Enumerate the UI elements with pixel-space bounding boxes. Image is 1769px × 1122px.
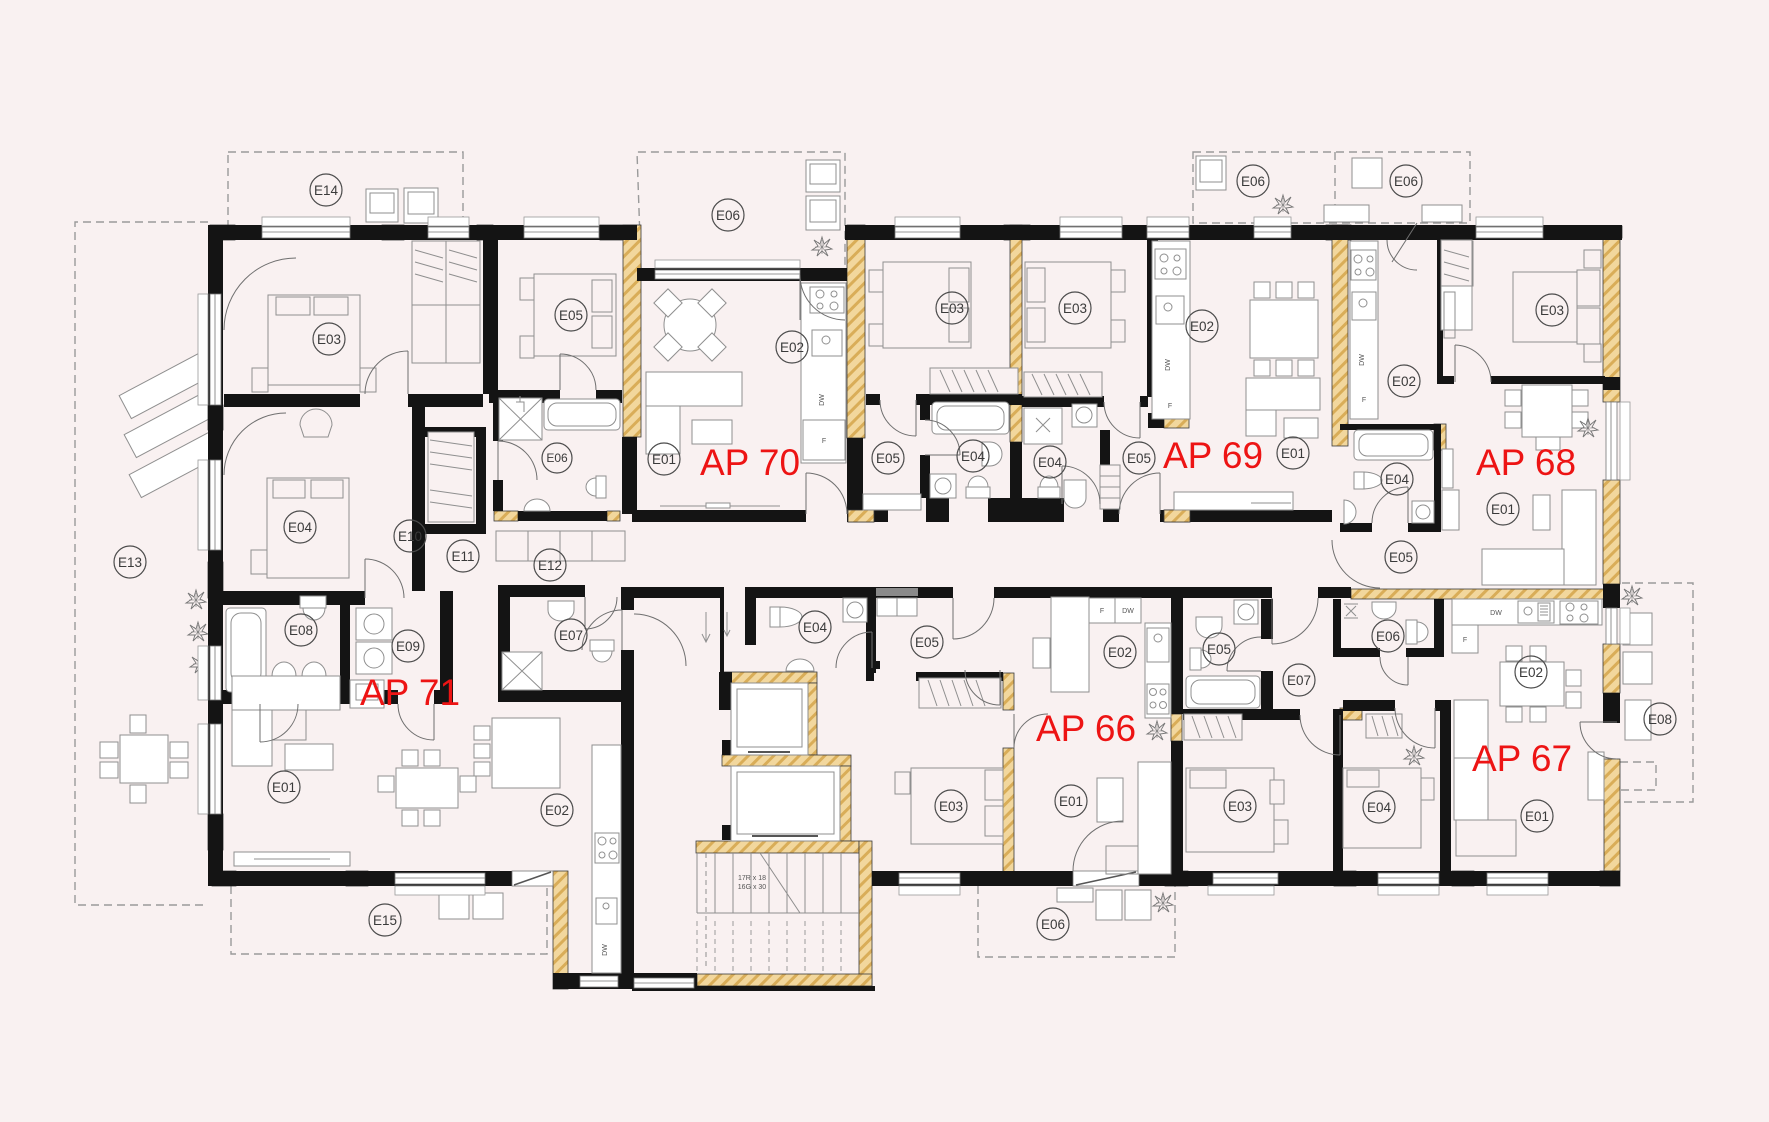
svg-text:E05: E05: [915, 635, 939, 650]
svg-text:AP 70: AP 70: [700, 442, 800, 483]
svg-text:E06: E06: [1394, 174, 1418, 189]
svg-text:DW: DW: [602, 944, 609, 956]
svg-text:E11: E11: [451, 549, 474, 564]
svg-text:E02: E02: [1392, 374, 1416, 389]
svg-text:16G x 30: 16G x 30: [738, 884, 767, 891]
svg-text:E05: E05: [1207, 642, 1231, 657]
svg-text:DW: DW: [819, 394, 826, 406]
svg-text:E15: E15: [373, 913, 397, 928]
svg-text:E07: E07: [1287, 673, 1311, 688]
svg-text:E05: E05: [1127, 451, 1151, 466]
svg-text:F: F: [1463, 637, 1467, 644]
svg-text:E04: E04: [1367, 800, 1392, 815]
svg-text:E01: E01: [1059, 794, 1083, 809]
svg-text:E02: E02: [1190, 319, 1214, 334]
svg-text:E02: E02: [1519, 665, 1543, 680]
svg-text:E02: E02: [780, 340, 804, 355]
svg-text:DW: DW: [1359, 354, 1366, 366]
svg-text:E06: E06: [1041, 917, 1065, 932]
svg-text:E01: E01: [652, 452, 676, 467]
svg-text:E04: E04: [961, 449, 986, 464]
svg-text:E01: E01: [272, 780, 296, 795]
svg-text:E02: E02: [1108, 645, 1132, 660]
svg-text:E08: E08: [289, 623, 313, 638]
svg-text:DW: DW: [1165, 359, 1172, 371]
svg-text:DW: DW: [1122, 608, 1134, 615]
svg-text:E05: E05: [1389, 550, 1413, 565]
svg-text:F: F: [822, 438, 826, 445]
svg-text:E06: E06: [1376, 629, 1400, 644]
svg-text:E06: E06: [546, 451, 568, 465]
svg-text:E10: E10: [398, 529, 422, 544]
svg-text:E04: E04: [1038, 455, 1063, 470]
svg-text:AP 71: AP 71: [360, 672, 460, 713]
svg-text:E08: E08: [1648, 712, 1672, 727]
svg-text:E07: E07: [559, 628, 583, 643]
svg-text:E03: E03: [1063, 301, 1087, 316]
svg-text:E04: E04: [288, 520, 313, 535]
svg-text:E01: E01: [1281, 446, 1305, 461]
svg-text:E12: E12: [538, 558, 562, 573]
svg-text:E04: E04: [803, 620, 828, 635]
svg-text:E09: E09: [396, 639, 420, 654]
svg-text:E05: E05: [559, 308, 583, 323]
svg-text:E13: E13: [118, 555, 142, 570]
svg-text:E01: E01: [1491, 502, 1515, 517]
svg-text:E05: E05: [876, 451, 900, 466]
svg-text:AP 67: AP 67: [1472, 738, 1572, 779]
svg-text:E03: E03: [1540, 303, 1564, 318]
svg-text:AP 66: AP 66: [1036, 708, 1136, 749]
svg-text:AP 69: AP 69: [1163, 435, 1263, 476]
svg-text:17R x 18: 17R x 18: [738, 875, 766, 882]
svg-text:E14: E14: [314, 183, 339, 198]
svg-text:E06: E06: [1241, 174, 1265, 189]
svg-text:F: F: [1100, 608, 1104, 615]
svg-text:E03: E03: [1228, 799, 1252, 814]
svg-text:AP 68: AP 68: [1476, 442, 1576, 483]
svg-text:E06: E06: [716, 208, 740, 223]
svg-text:E02: E02: [545, 803, 569, 818]
svg-text:F: F: [1168, 403, 1172, 410]
svg-text:E03: E03: [939, 799, 963, 814]
svg-text:DW: DW: [1490, 610, 1502, 617]
svg-text:F: F: [1362, 397, 1366, 404]
svg-text:E03: E03: [940, 301, 964, 316]
svg-text:E04: E04: [1385, 472, 1410, 487]
svg-text:E03: E03: [317, 332, 341, 347]
svg-text:E01: E01: [1525, 809, 1549, 824]
